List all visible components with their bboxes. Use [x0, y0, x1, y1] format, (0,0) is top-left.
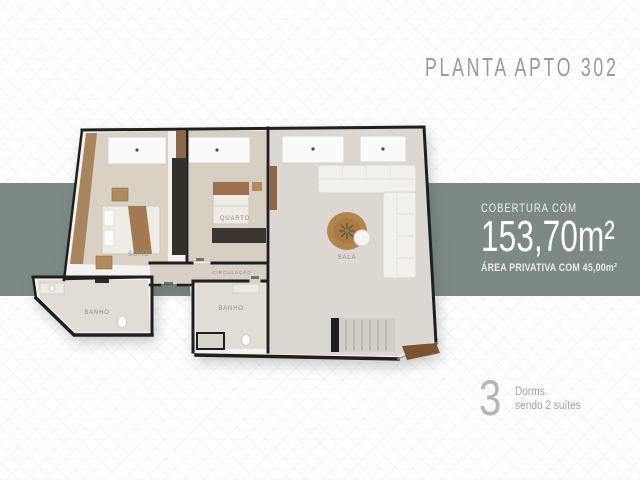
- side-table: [354, 230, 370, 246]
- suite-bed: [102, 206, 160, 254]
- quarto-side-table: [252, 182, 262, 191]
- label-sala: SALA: [338, 255, 357, 261]
- wood-door-suite: [176, 131, 186, 158]
- poster: SUÍTE QUARTO SALA CIRCULAÇÃO BANHO BANHO…: [0, 0, 640, 480]
- wood-edge-corner: [402, 343, 440, 360]
- label-suite: SUÍTE: [128, 251, 150, 258]
- label-banho-2: BANHO: [218, 306, 243, 312]
- dorms-detail: sendo 2 suítes: [515, 399, 581, 413]
- suite-wardrobe: [172, 158, 187, 255]
- area-private: ÁREA PRIVATIVA COM 45,00m²: [481, 262, 630, 274]
- suite-nightstand: [112, 188, 128, 201]
- quarto-wardrobe: [212, 228, 266, 243]
- coffee-table-icon: [339, 223, 355, 239]
- dorms-unit: Dorms.: [515, 385, 581, 399]
- area-total: 153,70m²: [481, 217, 615, 257]
- page-title: PLANTA APTO 302: [425, 52, 618, 83]
- dorms-text: Dorms. sendo 2 suítes: [515, 385, 581, 420]
- dorms-count: 3: [479, 376, 501, 420]
- area-panel: COBERTURA COM 153,70m² ÁREA PRIVATIVA CO…: [481, 203, 640, 274]
- label-banho-1: BANHO: [84, 310, 109, 316]
- wood-door-sala: [269, 166, 277, 210]
- suite-dresser: [96, 256, 112, 269]
- dorms-summary: 3 Dorms. sendo 2 suítes: [479, 376, 590, 420]
- label-quarto: QUARTO: [220, 216, 250, 222]
- label-circulacao: CIRCULAÇÃO: [212, 269, 251, 276]
